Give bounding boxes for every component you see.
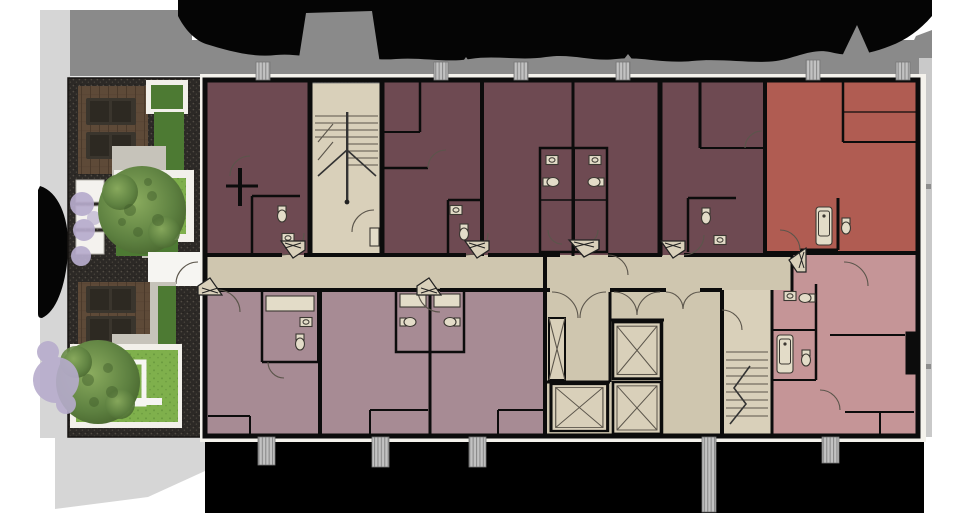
elevator-3 (613, 382, 661, 434)
elevator-1 (551, 384, 608, 431)
unit-north-1 (205, 80, 310, 255)
building-plan (198, 74, 926, 442)
floor-plan-image (0, 0, 960, 520)
elevator-2 (613, 322, 661, 379)
hedge-top (151, 85, 183, 109)
unit-north-4 (573, 80, 660, 255)
hedge-band-lower (158, 286, 176, 344)
unit-south-3 (430, 290, 545, 437)
deck-lounger (86, 98, 136, 125)
deck-lounger (86, 286, 136, 313)
unit-south-2 (320, 290, 430, 437)
courtyard-tree-upper (98, 166, 186, 254)
unit-north-5 (660, 80, 765, 255)
stairwell-south-fill (722, 290, 772, 437)
entry-walkway (148, 252, 208, 286)
unit-north-3 (482, 80, 573, 255)
floor-plan-svg (0, 0, 960, 520)
street-band (70, 0, 932, 79)
downspout-pipe-long (702, 437, 716, 512)
bottom-shadow-band (205, 437, 924, 513)
corridor (205, 255, 792, 290)
stair-rail (346, 112, 348, 200)
